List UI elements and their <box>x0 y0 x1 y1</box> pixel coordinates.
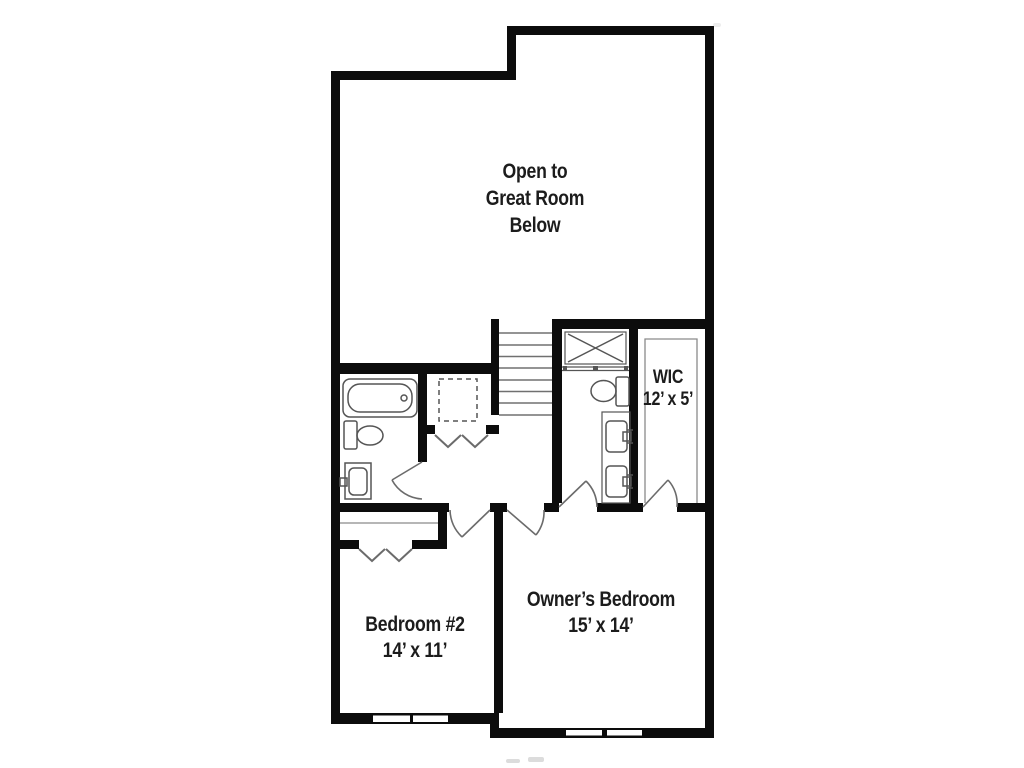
wall-hallcloset-stub-left <box>418 425 435 434</box>
bedroom2-door <box>450 510 490 537</box>
wic-shelf-line <box>645 339 697 503</box>
wall-top-left <box>331 71 516 80</box>
owner-bedroom-door <box>507 510 544 535</box>
floor-plan-drawing <box>0 0 1024 768</box>
great-room-label-line2: Great Room <box>434 185 636 212</box>
wall-top <box>507 26 714 35</box>
great-room-label-line3: Below <box>434 212 636 239</box>
wall-hall-a <box>331 503 449 512</box>
owner-bathroom-door <box>559 481 597 507</box>
window-bedroom2-2 <box>413 716 448 723</box>
bedroom2-dimensions: 14’ x 11’ <box>323 638 508 664</box>
owners-bedroom-name: Owner’s Bedroom <box>500 587 702 613</box>
floor-plan: Open to Great Room Below WIC 12’ x 5’ Be… <box>0 0 1024 768</box>
wall-bathroom-right <box>418 374 427 462</box>
wall-hall-d <box>677 503 714 512</box>
wic-name: WIC <box>609 367 727 389</box>
window-bedroom2-1 <box>373 716 410 723</box>
great-room-label: Open to Great Room Below <box>434 158 636 239</box>
bedroom2-closet-bifold-doors <box>359 549 412 561</box>
owners-bedroom-dimensions: 15’ x 14’ <box>500 613 702 639</box>
owners-bedroom-label: Owner’s Bedroom 15’ x 14’ <box>500 587 702 639</box>
double-sink-vanity <box>602 412 633 503</box>
bedroom2-name: Bedroom #2 <box>323 612 508 638</box>
linen-dashed-box <box>439 379 477 421</box>
wic-label: WIC 12’ x 5’ <box>609 367 727 411</box>
wall-hall-c <box>597 503 643 512</box>
great-room-label-line1: Open to <box>434 158 636 185</box>
wall-bed2closet-stub-right <box>412 540 447 549</box>
wall-top-shower-wic <box>552 319 705 329</box>
wall-bed2closet-stub-left <box>331 540 359 549</box>
sink-vanity <box>340 463 371 499</box>
hall-bathroom-door <box>392 462 422 499</box>
wall-stair-bath-divider <box>552 319 562 503</box>
wall-stair-left <box>491 319 499 415</box>
window-owner-1 <box>566 730 602 736</box>
wall-hall-b <box>544 503 559 512</box>
wic-door <box>643 480 677 507</box>
window-owner-2 <box>607 730 642 736</box>
owners-bathroom <box>562 332 633 503</box>
shower <box>562 332 629 371</box>
stairs <box>499 333 552 415</box>
bedroom2-label: Bedroom #2 14’ x 11’ <box>323 612 508 664</box>
hall-closet-bifold-doors <box>435 435 488 447</box>
wic-dimensions: 12’ x 5’ <box>609 389 727 411</box>
toilet <box>344 421 383 449</box>
wall-hallcloset-stub-right <box>486 425 499 434</box>
bathtub <box>343 379 417 417</box>
wall-greatroom-bottom <box>331 363 499 374</box>
